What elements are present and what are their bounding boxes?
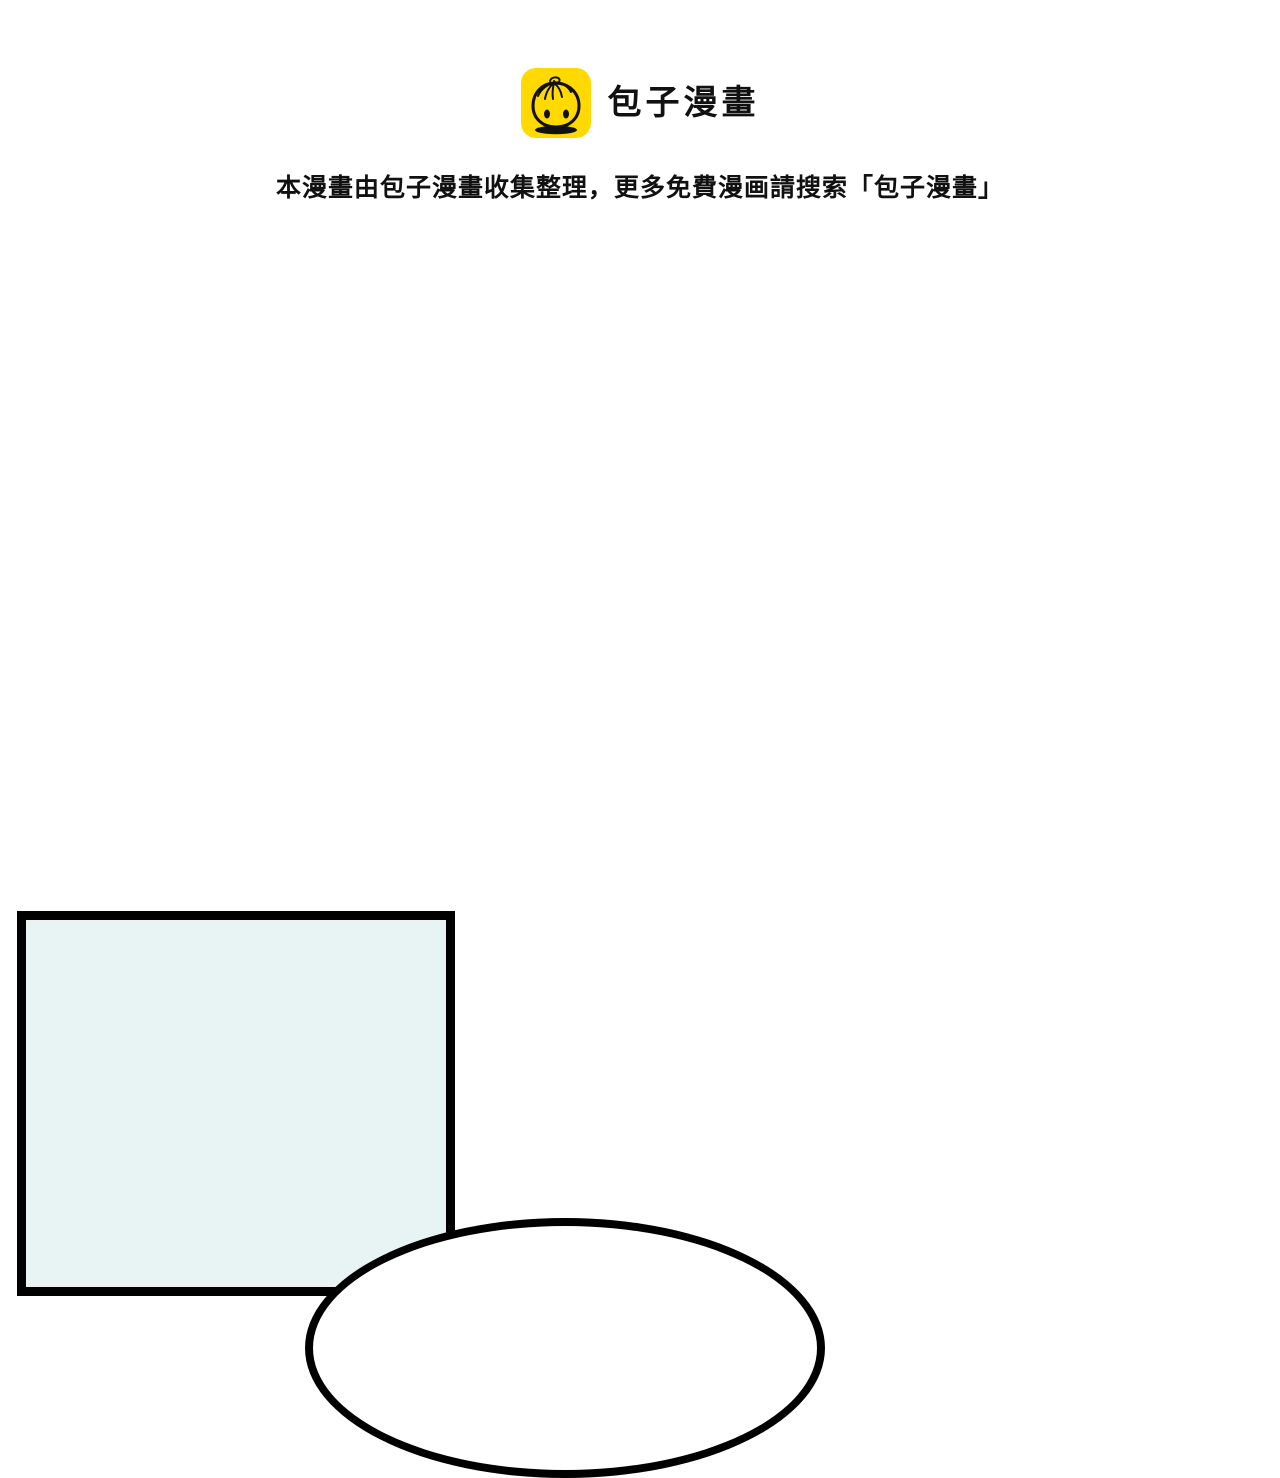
bun-left-eye	[544, 110, 550, 119]
brand-lockup: 包子漫畫	[521, 68, 760, 138]
brand-header: 包子漫畫 本漫畫由包子漫畫收集整理，更多免費漫画請搜索「包子漫畫」	[0, 68, 1280, 201]
brand-name: 包子漫畫	[604, 86, 760, 120]
baozi-bun-icon	[521, 68, 591, 138]
bun-right-eye	[563, 110, 569, 119]
brand-tagline: 本漫畫由包子漫畫收集整理，更多免費漫画請搜索「包子漫畫」	[276, 176, 1004, 201]
bun-body	[533, 83, 579, 127]
speech-bubble	[305, 1218, 825, 1478]
comic-panel	[17, 911, 455, 1296]
